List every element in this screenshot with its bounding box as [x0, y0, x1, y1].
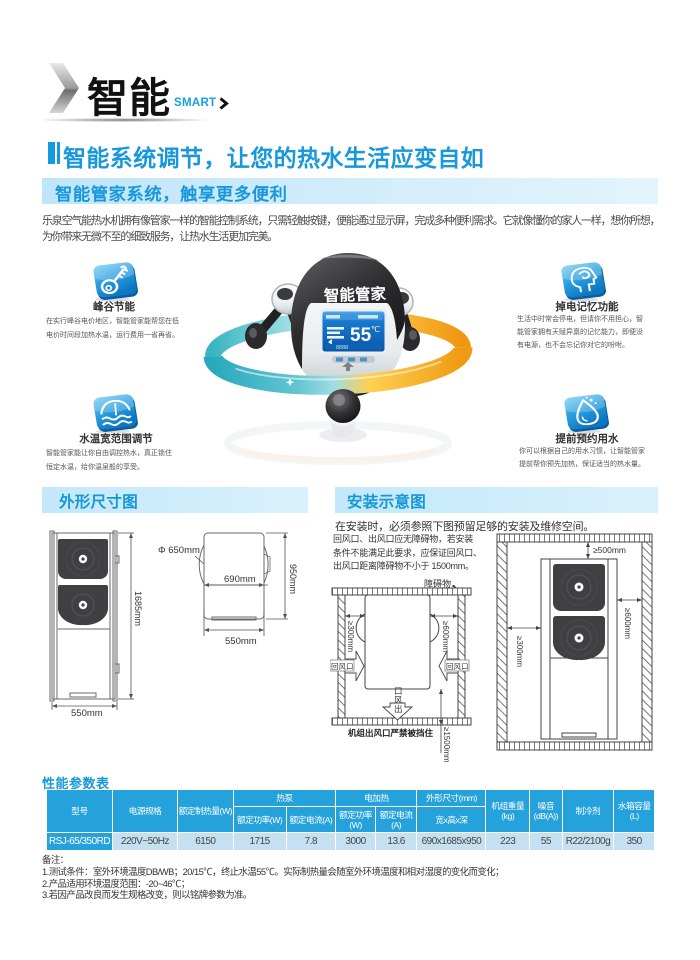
svg-text:≥500mm: ≥500mm	[593, 545, 626, 555]
svg-text:Φ 650mm: Φ 650mm	[158, 545, 200, 556]
svg-text:智能管家: 智能管家	[324, 284, 387, 305]
svg-text:≥600mm: ≥600mm	[623, 608, 632, 639]
svg-text:≥300mm: ≥300mm	[515, 636, 524, 667]
svg-text:950mm: 950mm	[288, 564, 298, 594]
svg-text:690mm: 690mm	[224, 574, 256, 585]
svg-text:回风口: 回风口	[446, 662, 469, 671]
svg-text:8888: 8888	[336, 345, 348, 351]
svg-text:550mm: 550mm	[225, 636, 257, 647]
svg-text:55: 55	[350, 325, 372, 346]
svg-text:回风口: 回风口	[331, 662, 354, 671]
svg-text:≥300mm: ≥300mm	[346, 621, 355, 652]
svg-text:550mm: 550mm	[71, 708, 103, 719]
svg-text:≥1500mm: ≥1500mm	[442, 727, 451, 763]
svg-text:出: 出	[394, 704, 403, 714]
svg-text:℃: ℃	[371, 325, 380, 334]
svg-text:1685mm: 1685mm	[133, 591, 143, 626]
svg-text:≥600mm: ≥600mm	[441, 621, 450, 652]
